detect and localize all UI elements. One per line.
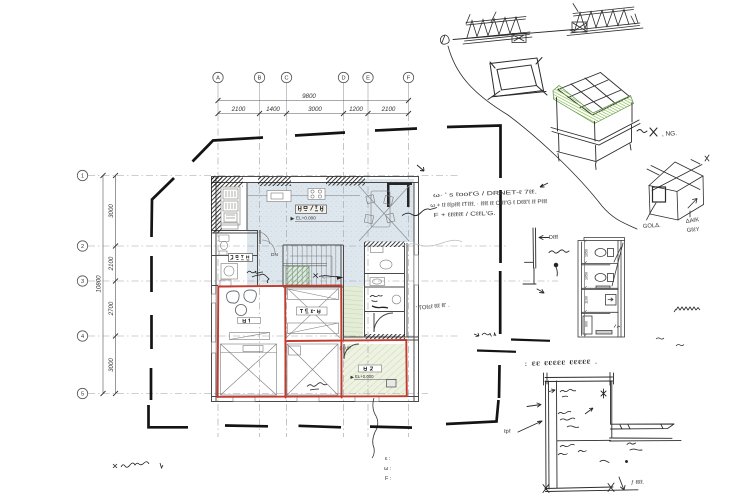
- svg-text:D: D: [341, 76, 345, 82]
- svg-text:EL+0.000: EL+0.000: [296, 216, 316, 221]
- svg-text:▶: ▶: [291, 216, 295, 222]
- svg-text:ε :: ε :: [385, 456, 391, 462]
- svg-text:4: 4: [81, 334, 84, 340]
- svg-text:ω· ' s ℓooℓ'G / DRΝET-ℓ 7ℓℓ.: ω· ' s ℓooℓ'G / DRΝET-ℓ 7ℓℓ.: [433, 189, 538, 199]
- svg-text:3: 3: [81, 279, 84, 285]
- svg-text:: ℓℓ ℓℓℓℓℓ ℓℓℓℓℓ .: : ℓℓ ℓℓℓℓℓ ℓℓℓℓℓ .: [524, 358, 599, 368]
- svg-text:A: A: [216, 76, 220, 82]
- svg-text:DN: DN: [271, 252, 278, 258]
- svg-text:EL+0.000: EL+0.000: [355, 374, 374, 379]
- svg-text:GΟLΔ.: GΟLΔ.: [643, 223, 661, 230]
- svg-text:1400: 1400: [266, 106, 280, 113]
- svg-text:2100: 2100: [231, 106, 246, 113]
- svg-text:10800: 10800: [96, 275, 103, 293]
- svg-text:1100: 1100: [585, 296, 589, 304]
- svg-text:1050: 1050: [585, 249, 589, 257]
- svg-text:GℓέY: GℓέY: [686, 226, 700, 234]
- svg-text:9800: 9800: [302, 93, 316, 100]
- svg-text:E: E: [366, 76, 370, 82]
- svg-text:' TΟℓεℓ ℓℓℓ ℓℓ' .: ' TΟℓεℓ ℓℓℓ ℓℓ' .: [416, 302, 451, 312]
- svg-text:Dℓℓℓ: Dℓℓℓ: [549, 235, 559, 241]
- svg-text:2700: 2700: [108, 301, 115, 316]
- svg-text:2: 2: [81, 244, 84, 250]
- svg-text:B: B: [258, 76, 262, 82]
- svg-text:1200: 1200: [349, 106, 363, 113]
- svg-text:, ΝG.: , ΝG.: [662, 130, 678, 138]
- svg-text:F :: F :: [385, 476, 392, 482]
- svg-text:F: F: [407, 76, 411, 82]
- svg-text:1050: 1050: [585, 272, 589, 280]
- svg-text:ℓpℓ: ℓpℓ: [504, 429, 511, 435]
- svg-text:900: 900: [585, 321, 589, 327]
- svg-text:1: 1: [81, 174, 84, 180]
- svg-text:ƒ ℓℓℓℓ.: ƒ ℓℓℓℓ.: [631, 480, 645, 486]
- svg-text:ω :: ω :: [384, 466, 392, 472]
- svg-text:5: 5: [81, 392, 84, 398]
- svg-text:▶: ▶: [351, 374, 355, 379]
- svg-text:ω + tℓ ℓℓpℓℓℓ ℓTℓℓℓ. · ℓℓℓℓ ℓ: ω + tℓ ℓℓpℓℓℓ ℓTℓℓℓ. · ℓℓℓℓ ℓℓ Cℓℓℓ'G ℓ …: [430, 199, 547, 209]
- svg-text:3000: 3000: [108, 358, 115, 372]
- svg-text:2100: 2100: [108, 256, 115, 271]
- svg-text:3000: 3000: [108, 204, 115, 218]
- svg-text:2100: 2100: [381, 106, 396, 113]
- svg-text:C: C: [284, 76, 288, 82]
- svg-text:F + ℓℓℓℓℓℓ / CℓℓL'G.: F + ℓℓℓℓℓℓ / CℓℓL'G.: [434, 211, 497, 219]
- svg-text:ΔAℓK: ΔAℓK: [685, 217, 699, 225]
- svg-text:3000: 3000: [308, 106, 322, 113]
